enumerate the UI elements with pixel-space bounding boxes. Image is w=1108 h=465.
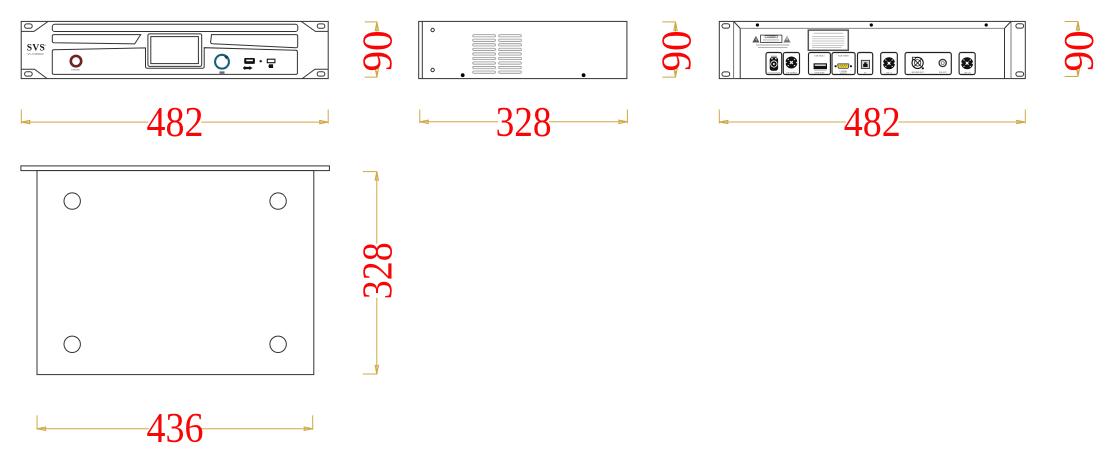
svg-text:482: 482	[147, 99, 204, 146]
svg-text:DC IN 100-240V: DC IN 100-240V	[768, 73, 781, 75]
svg-text:®: ®	[44, 43, 47, 48]
svg-text:NAB VIDEO: NAB VIDEO	[838, 54, 849, 57]
svg-text:USB HUB 3: USB HUB 3	[814, 55, 824, 57]
svg-text:ANT 1 A: ANT 1 A	[886, 72, 893, 75]
svg-text:482: 482	[844, 99, 901, 146]
svg-text:ANT OUTPUT: ANT OUTPUT	[786, 72, 798, 75]
svg-text:CAUTION: CAUTION	[767, 36, 776, 39]
svg-text:90: 90	[1056, 31, 1103, 72]
svg-text:SV-VM8000: SV-VM8000	[27, 52, 44, 56]
svg-text:ANT 1 B: ANT 1 B	[964, 72, 971, 75]
svg-text:436: 436	[147, 405, 204, 452]
svg-text:VOL OUT: VOL OUT	[939, 72, 948, 74]
svg-text:SPEAKER OUT: SPEAKER OUT	[912, 71, 925, 74]
svg-text:328: 328	[496, 99, 552, 146]
svg-text:POWER: POWER	[71, 70, 80, 72]
svg-text:OVER DOSE: OVER DOSE	[814, 73, 825, 75]
svg-text:90: 90	[355, 31, 402, 72]
svg-text:SWITCH: SWITCH	[840, 73, 848, 75]
svg-text:328: 328	[355, 242, 402, 299]
svg-text:90: 90	[653, 31, 700, 72]
